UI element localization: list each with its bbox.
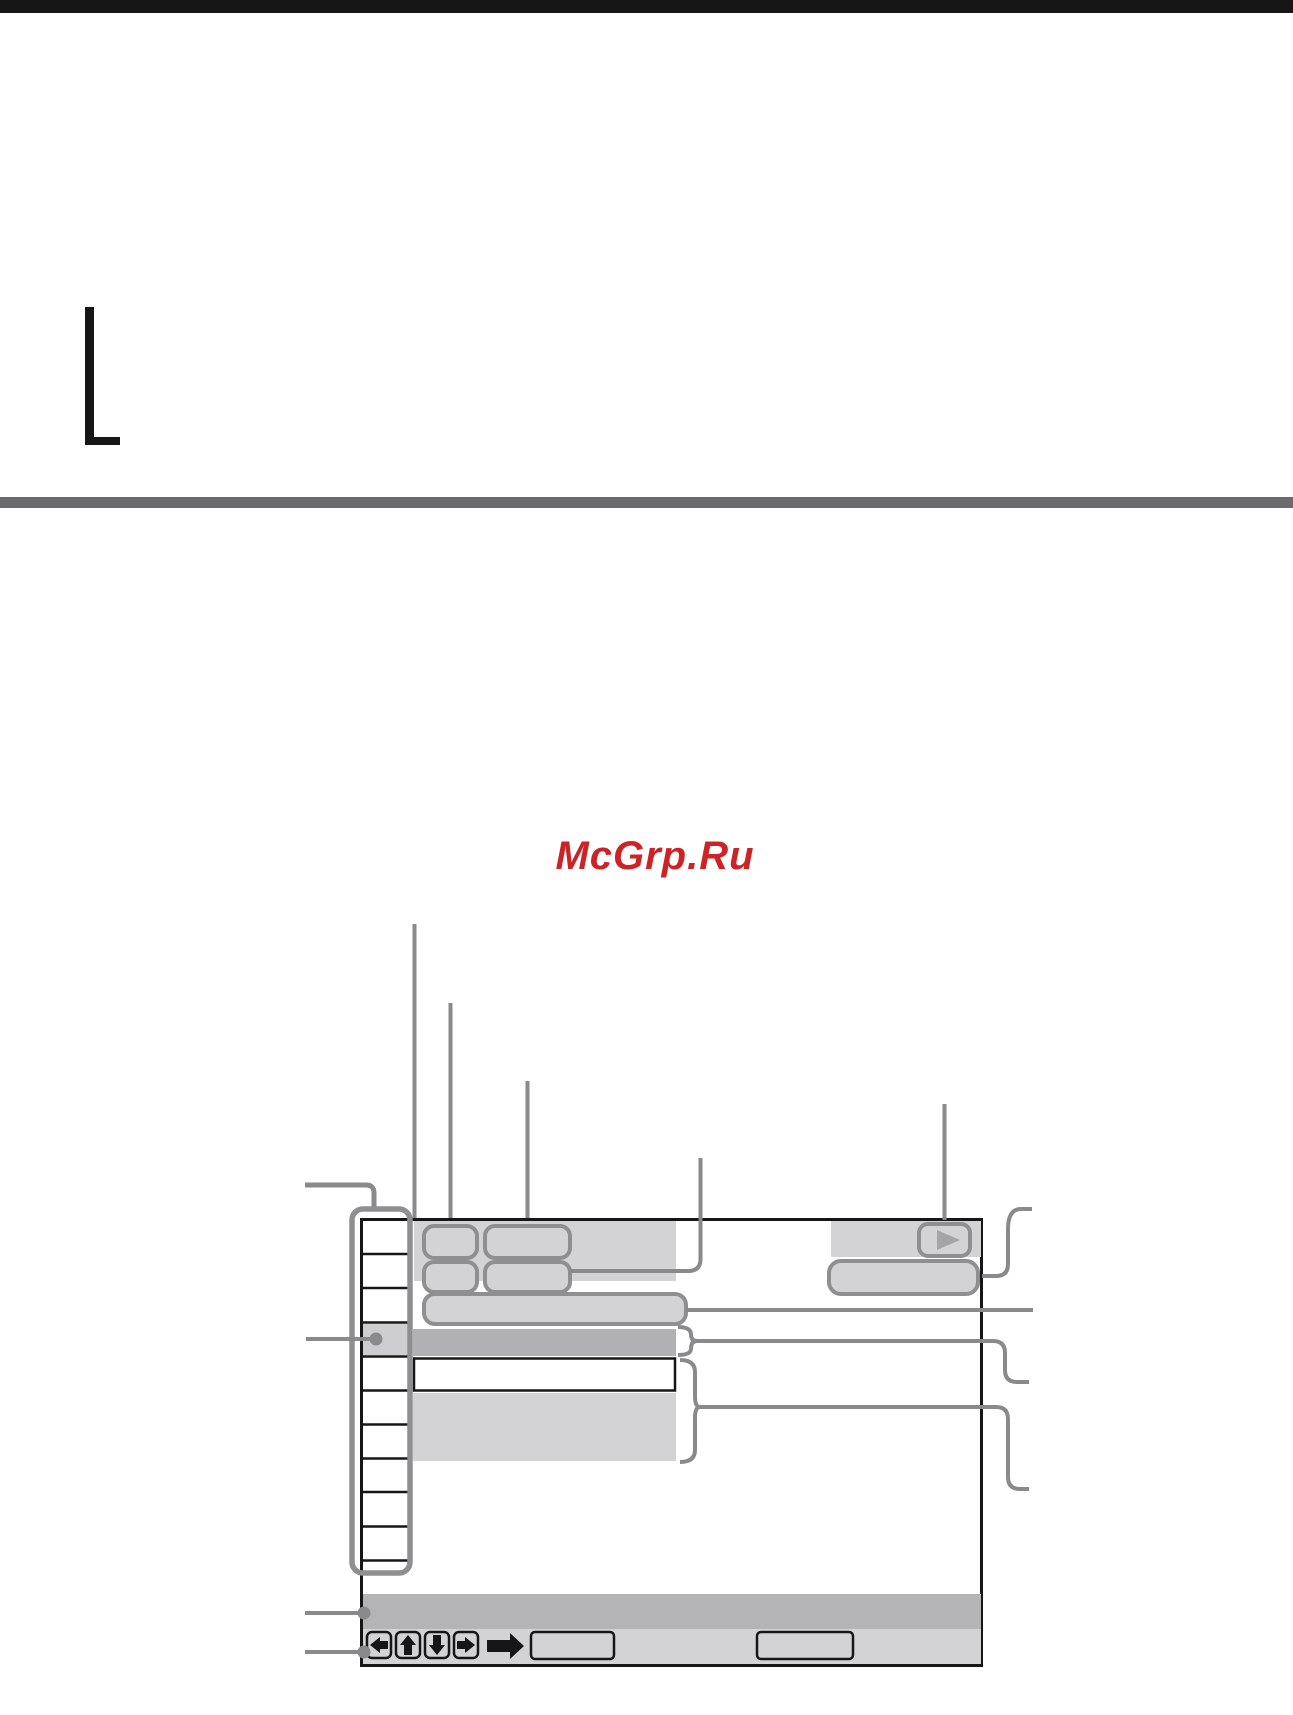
- info-box-row2-a: [424, 1262, 477, 1292]
- enter-key-box: [757, 1632, 853, 1659]
- status-bar: [363, 1594, 981, 1629]
- select-key-box: [531, 1632, 614, 1659]
- edit-row-box: [414, 1359, 675, 1391]
- info-box-row1-b: [485, 1226, 570, 1258]
- bullet-dot-icon-3: [358, 1646, 371, 1659]
- info-row-block: [413, 1393, 676, 1461]
- callout-line-left-column: [305, 1185, 374, 1207]
- callout-line-right-1: [982, 1209, 1032, 1276]
- info-box-row2-b: [485, 1262, 570, 1292]
- bullet-dot-icon-2: [358, 1607, 371, 1620]
- bullet-dot-icon: [370, 1333, 383, 1346]
- highlighted-row: [413, 1329, 676, 1356]
- manual-page: McGrp.Ru: [0, 0, 1293, 1715]
- info-box-row1-a: [424, 1226, 477, 1258]
- osd-layout-diagram: [0, 0, 1293, 1715]
- info-box-row3-wide: [424, 1294, 686, 1324]
- title-name-box: [829, 1261, 978, 1294]
